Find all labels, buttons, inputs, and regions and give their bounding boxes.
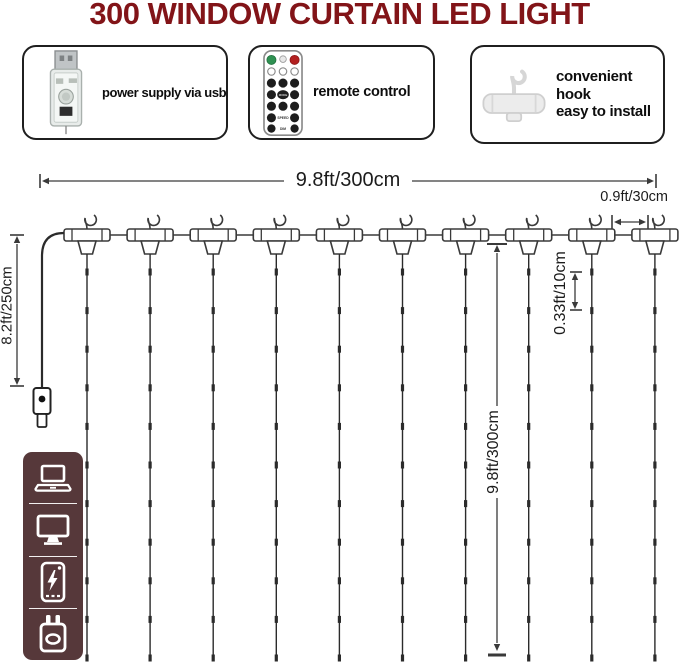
remote-mode-label: MODE <box>279 92 288 96</box>
feature-hook: convenient hook easy to install <box>470 45 665 144</box>
sidebar-cell-monitor <box>29 503 77 555</box>
compatible-devices-sidebar <box>23 452 83 660</box>
feature-hook-label-line2: easy to install <box>556 103 663 121</box>
monitor-icon <box>34 514 72 546</box>
dimension-led-spacing: 0.33ft/10cm <box>552 247 570 339</box>
product-infographic: 300 WINDOW CURTAIN LED LIGHT power suppl… <box>0 0 679 668</box>
remote-dim-label: DIM <box>280 126 286 130</box>
sidebar-cell-laptop <box>23 452 83 503</box>
feature-remote-control: MODE SPEED DIM remote control <box>248 45 435 140</box>
dimension-hook-spacing: 0.9ft/30cm <box>592 189 668 205</box>
dimension-curtain-drop: 9.8ft/300cm <box>485 406 503 498</box>
remote-control-icon: MODE SPEED DIM <box>263 50 303 136</box>
wall-plug-icon <box>37 614 69 654</box>
feature-power-supply: power supply via usb <box>22 45 228 140</box>
feature-hook-label-line1: convenient hook <box>556 68 663 103</box>
remote-speed-label: SPEED <box>277 116 289 120</box>
dimension-curtain-width: 9.8ft/300cm <box>40 169 656 192</box>
feature-hook-label: convenient hook easy to install <box>556 68 663 121</box>
usb-plug-icon <box>34 49 98 137</box>
feature-power-label: power supply via usb <box>102 85 226 100</box>
hanger-hook-icon <box>478 65 550 125</box>
sidebar-cell-wall-plug <box>29 608 77 660</box>
power-bank-icon <box>38 561 68 603</box>
feature-remote-label: remote control <box>313 84 410 101</box>
dimension-lead-cable: 8.2ft/250cm <box>0 262 16 350</box>
sidebar-cell-power-bank <box>29 556 77 608</box>
laptop-icon <box>34 463 72 493</box>
